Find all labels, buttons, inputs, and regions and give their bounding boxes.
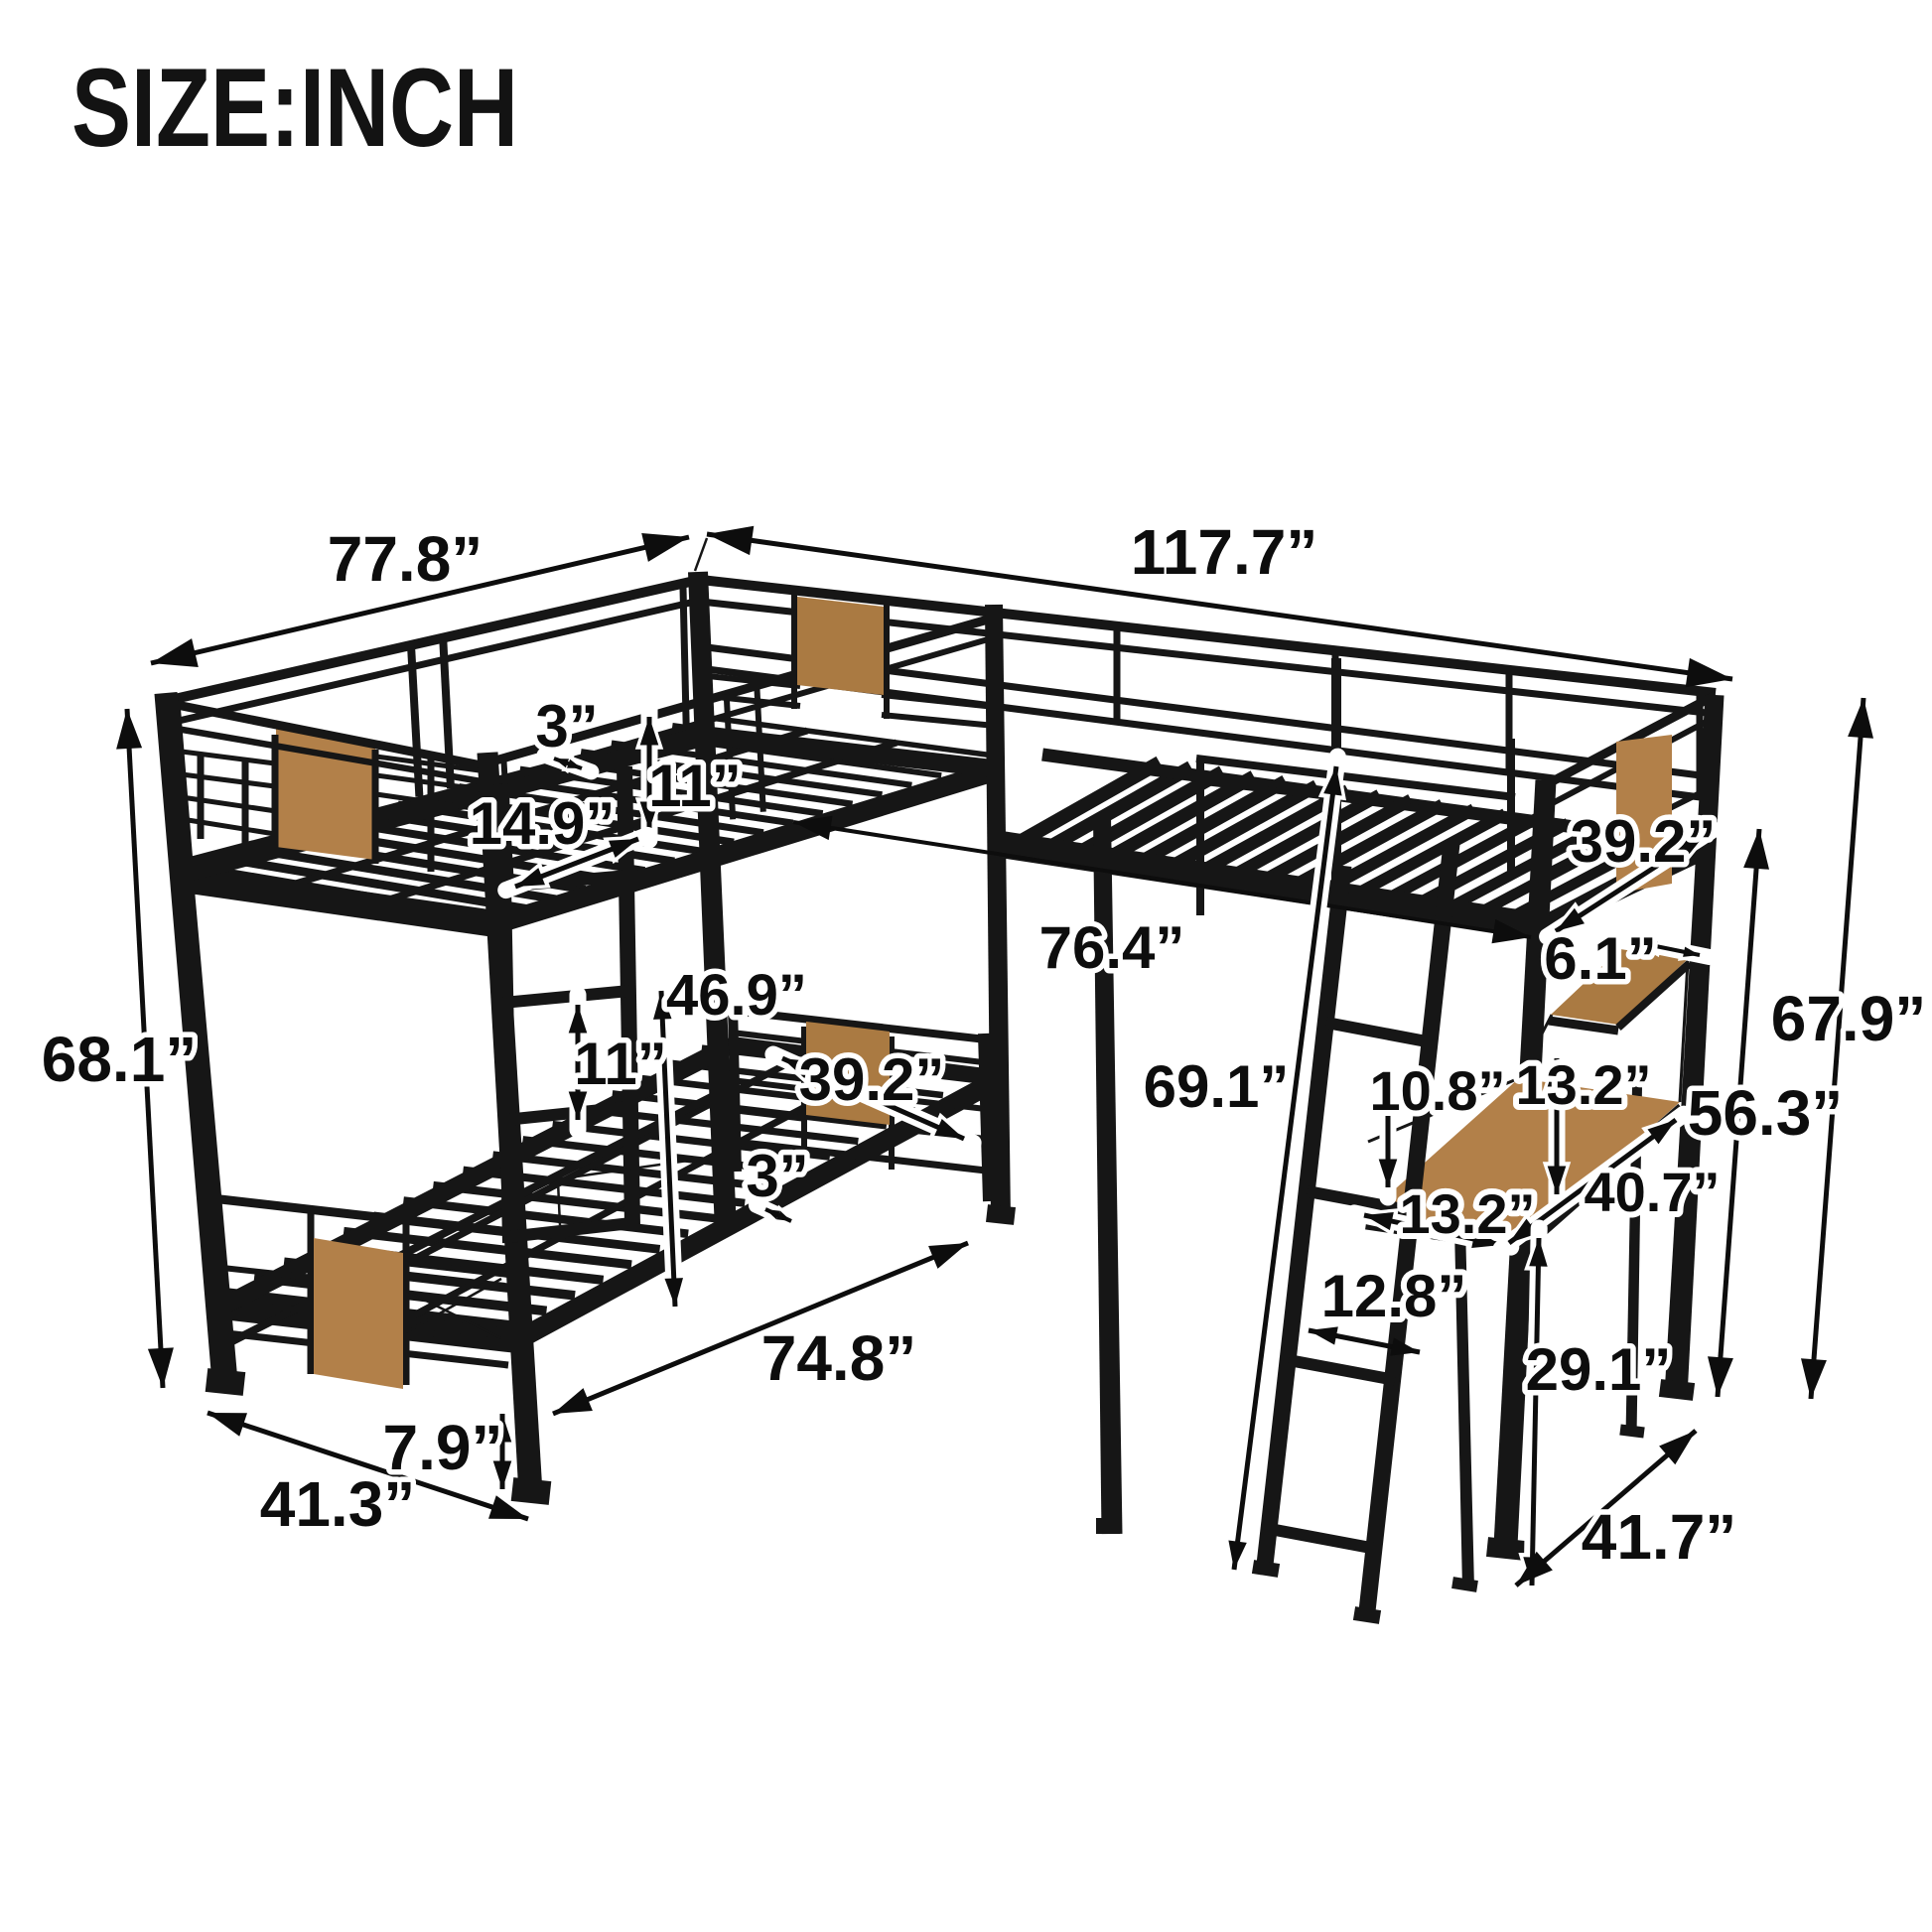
svg-text:3”: 3” (746, 1143, 808, 1209)
svg-text:11”: 11” (574, 1031, 666, 1097)
svg-text:117.7”: 117.7” (1131, 516, 1318, 588)
svg-text:41.7”: 41.7” (1582, 1501, 1737, 1573)
svg-text:67.9”: 67.9” (1771, 983, 1927, 1054)
svg-text:77.8”: 77.8” (328, 523, 483, 595)
svg-text:29.1”: 29.1” (1526, 1336, 1672, 1403)
svg-text:46.9”: 46.9” (666, 963, 807, 1028)
svg-text:76.4”: 76.4” (1039, 914, 1185, 981)
svg-text:14.9”: 14.9” (470, 790, 616, 857)
svg-text:13.2”: 13.2” (1516, 1053, 1652, 1116)
svg-text:69.1”: 69.1” (1144, 1053, 1290, 1120)
svg-text:6.1”: 6.1” (1544, 925, 1656, 992)
svg-text:10.8”: 10.8” (1370, 1059, 1506, 1122)
svg-text:40.7”: 40.7” (1585, 1161, 1721, 1223)
svg-text:74.8”: 74.8” (761, 1322, 917, 1394)
svg-text:12.8”: 12.8” (1321, 1263, 1467, 1329)
svg-text:41.3”: 41.3” (260, 1468, 416, 1540)
svg-text:56.3”: 56.3” (1688, 1077, 1844, 1149)
svg-text:3”: 3” (535, 693, 598, 759)
svg-text:11”: 11” (648, 753, 741, 819)
svg-text:13.2”: 13.2” (1400, 1182, 1536, 1245)
svg-text:SIZE:INCH: SIZE:INCH (71, 46, 518, 170)
svg-text:68.1”: 68.1” (42, 1024, 198, 1095)
svg-text:39.2”: 39.2” (799, 1046, 945, 1113)
svg-text:39.2”: 39.2” (1571, 808, 1717, 875)
